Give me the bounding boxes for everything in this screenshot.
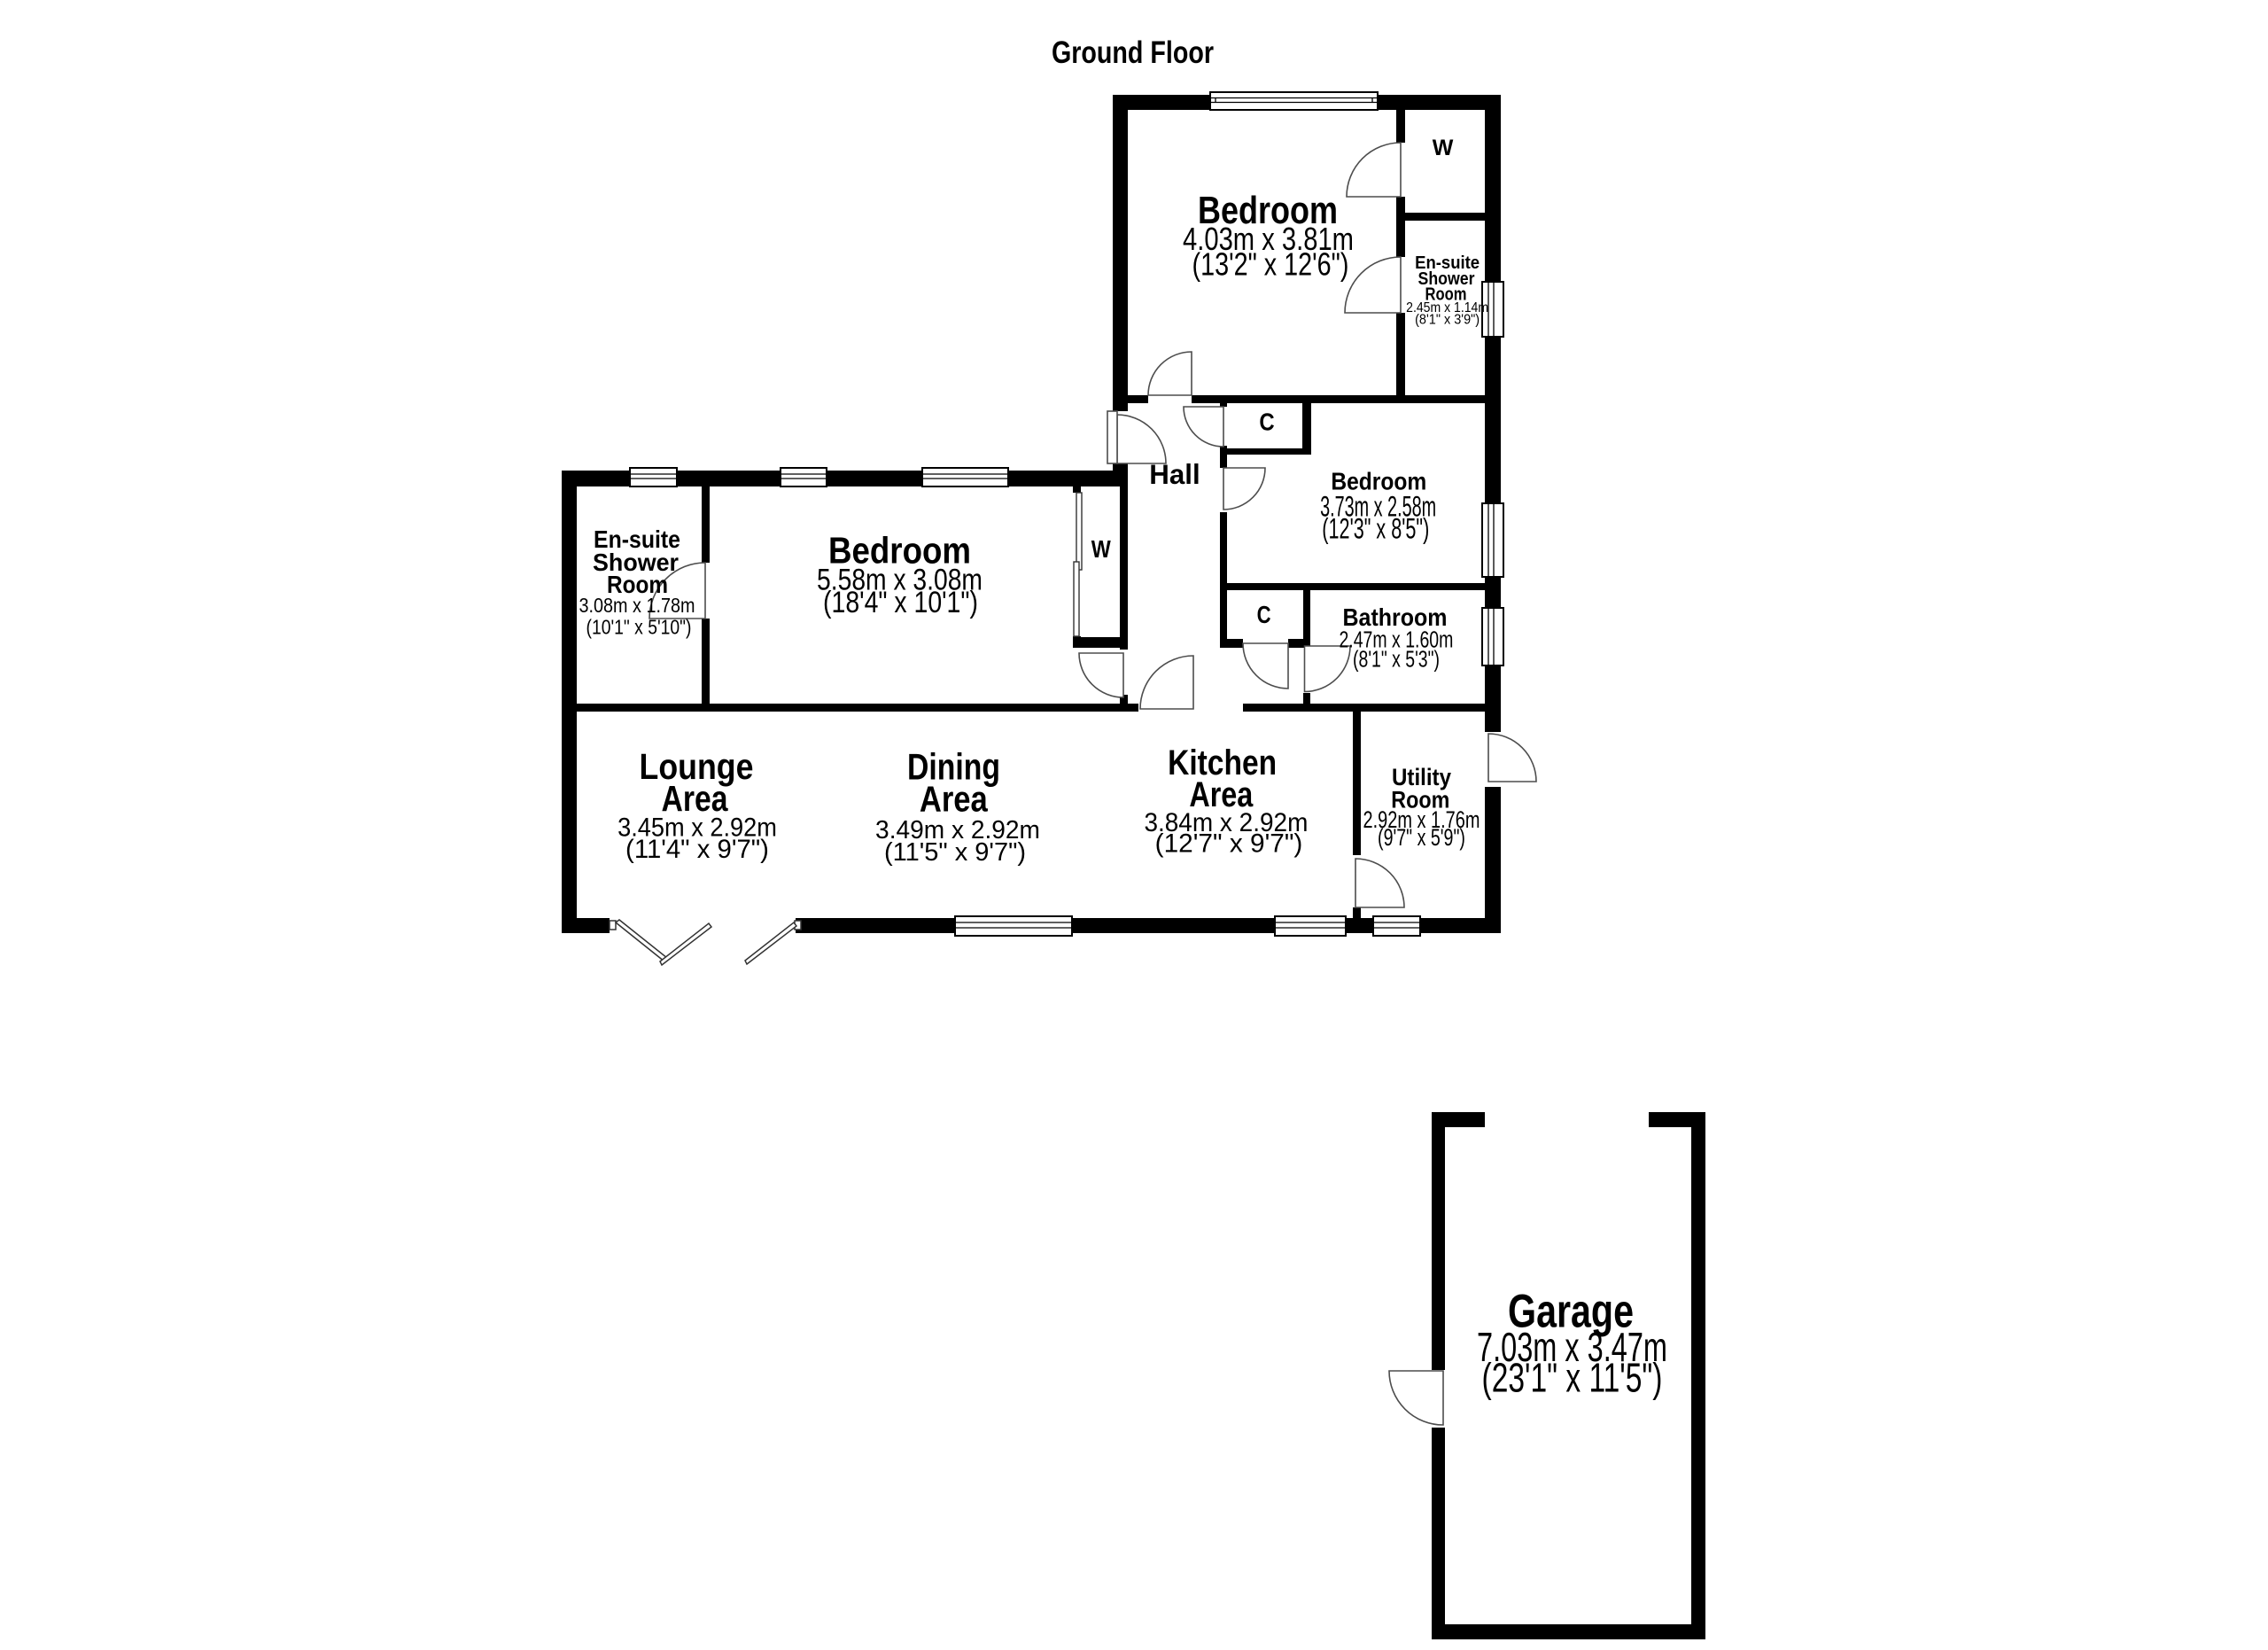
svg-text:(8'1" x 3'9"): (8'1" x 3'9") xyxy=(1415,312,1480,328)
svg-text:C: C xyxy=(1259,409,1274,436)
svg-text:3.08m x 1.78m: 3.08m x 1.78m xyxy=(579,595,695,618)
svg-text:W: W xyxy=(1433,136,1454,160)
svg-text:(11'5" x 9'7"): (11'5" x 9'7") xyxy=(884,838,1026,867)
svg-text:Area: Area xyxy=(920,779,989,819)
svg-text:Hall: Hall xyxy=(1149,459,1200,490)
svg-text:(11'4" x 9'7"): (11'4" x 9'7") xyxy=(625,835,769,864)
svg-text:(12'3" x 8'5"): (12'3" x 8'5") xyxy=(1322,512,1429,544)
svg-text:W: W xyxy=(1091,537,1111,564)
svg-text:Ground Floor: Ground Floor xyxy=(1052,35,1214,69)
svg-text:C: C xyxy=(1257,602,1271,629)
svg-text:(13'2" x 12'6"): (13'2" x 12'6") xyxy=(1192,245,1349,282)
svg-text:(23'1" x 11'5"): (23'1" x 11'5") xyxy=(1482,1354,1663,1401)
svg-text:(12'7" x 9'7"): (12'7" x 9'7") xyxy=(1155,829,1303,858)
svg-text:(8'1" x 5'3"): (8'1" x 5'3") xyxy=(1353,646,1440,672)
svg-text:(10'1" x 5'10"): (10'1" x 5'10") xyxy=(586,616,692,639)
svg-text:(9'7" x 5'9"): (9'7" x 5'9") xyxy=(1378,824,1465,851)
svg-text:(18'4" x 10'1"): (18'4" x 10'1") xyxy=(823,586,978,619)
